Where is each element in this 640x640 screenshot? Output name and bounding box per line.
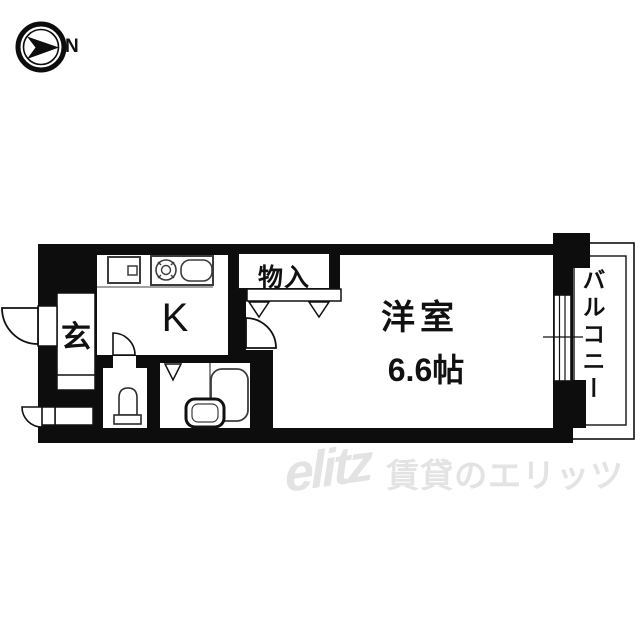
kitchen-counter [97,256,213,287]
watermark-logo: elitz [284,436,371,502]
room-size-label: 6.6帖 [340,345,512,391]
western-room-floor [340,255,553,428]
window-frame [554,295,571,381]
toilet-bowl [119,388,137,415]
floorplan-image: N 玄 K 物入 洋室 6.6帖 バルコニー elitz 賃貸のエリッツ [0,0,640,640]
watermark-text: 賃貸のエリッツ [386,458,624,494]
compass-icon [18,24,64,70]
front-door-swing-arc [2,308,38,344]
front-door-leaf [38,306,57,346]
floorplan-drawing [0,0,640,640]
balcony-label: バルコニー [577,268,609,418]
corner-pillar-top-right [553,233,590,268]
north-label: N [65,36,80,58]
toilet-base [114,415,141,424]
western-room-label: 洋室 [340,290,500,339]
kitchen-label: K [138,296,212,341]
kitchen-counter-box [108,257,140,283]
meter-box [55,407,93,425]
north-arrow-icon [27,37,59,60]
entrance-label: 玄 [56,312,96,356]
hallway-lower-floor [273,350,340,428]
storage-label: 物入 [237,258,331,294]
watermark: elitz 賃貸のエリッツ [286,448,624,502]
kitchen-toilet-doorway [113,356,136,368]
meter-box-door-arc [22,407,42,427]
